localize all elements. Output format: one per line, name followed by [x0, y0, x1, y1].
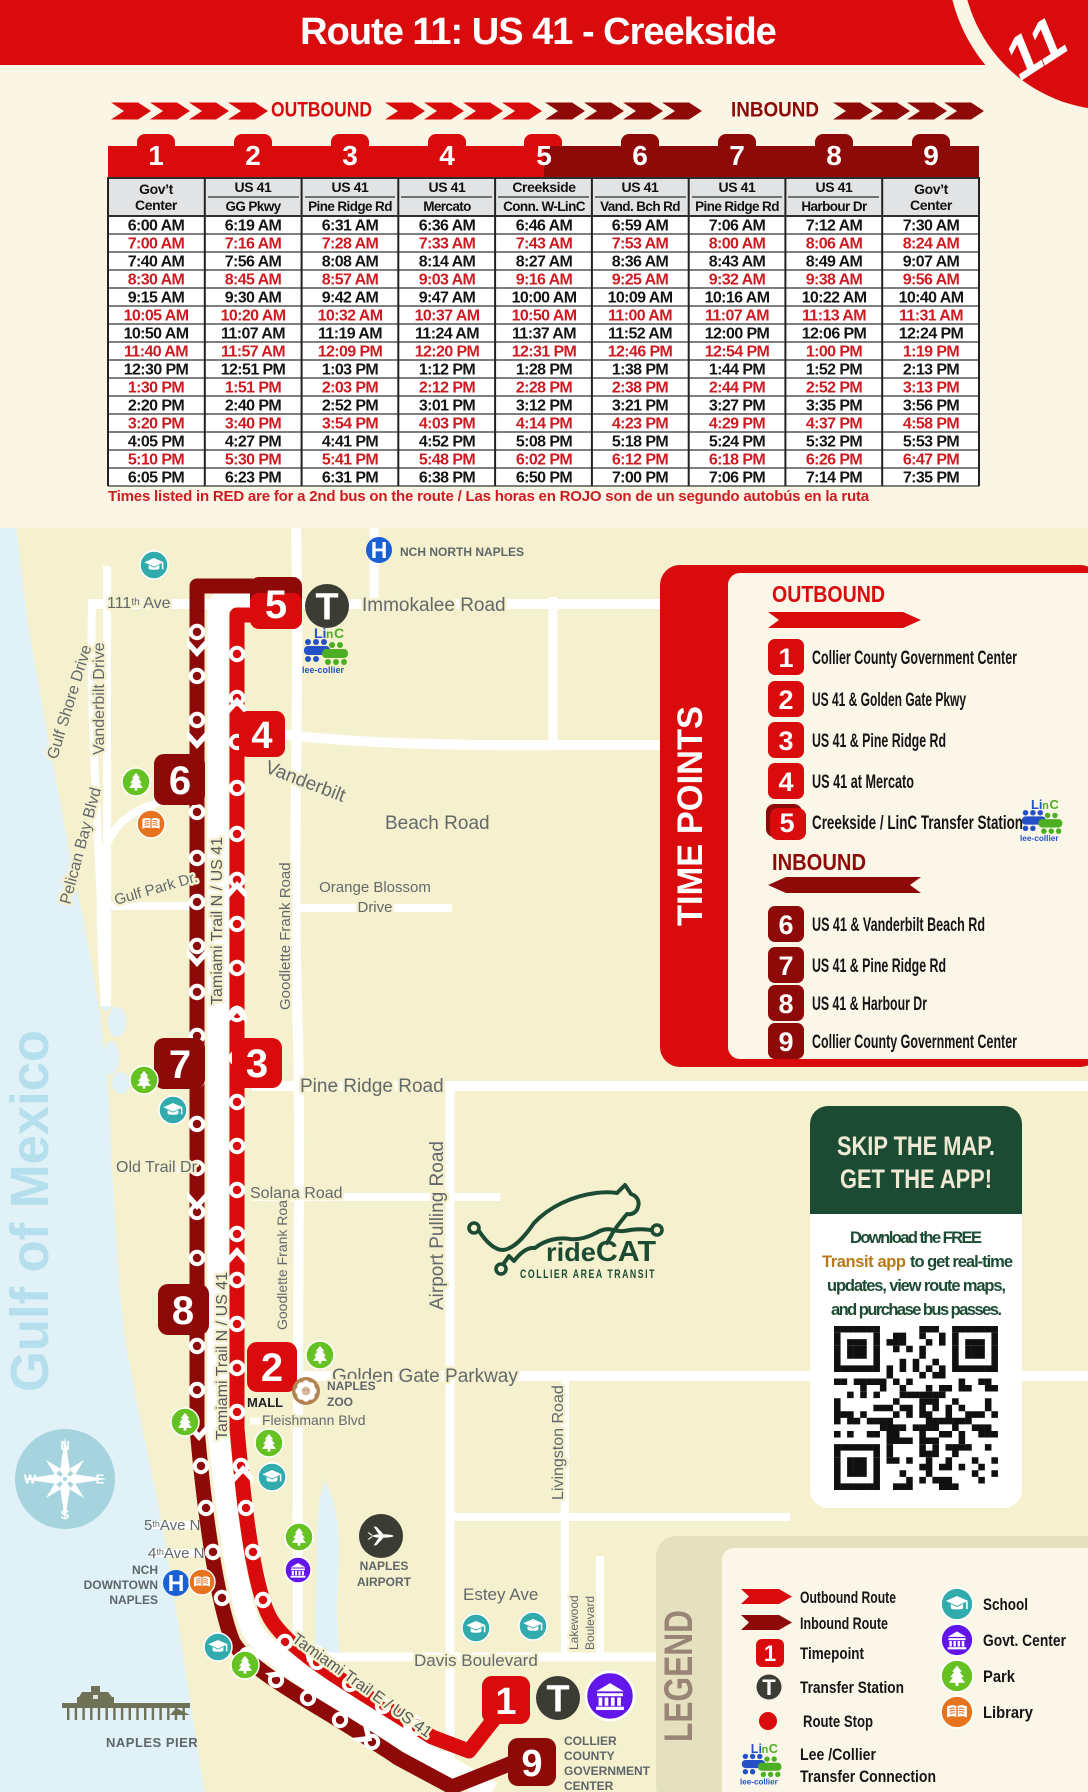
- svg-text:9:38 AM: 9:38 AM: [806, 272, 863, 289]
- svg-text:10:05 AM: 10:05 AM: [124, 308, 189, 325]
- svg-text:6:59 AM: 6:59 AM: [612, 218, 669, 235]
- svg-text:5:10 PM: 5:10 PM: [128, 452, 185, 469]
- svg-text:7:43 AM: 7:43 AM: [516, 236, 573, 253]
- svg-text:Harbour Dr: Harbour Dr: [801, 199, 868, 214]
- svg-text:9:56 AM: 9:56 AM: [903, 272, 960, 289]
- svg-text:US 41: US 41: [429, 179, 467, 195]
- svg-text:111th Ave: 111th Ave: [107, 595, 171, 612]
- svg-text:8:27 AM: 8:27 AM: [516, 254, 573, 271]
- svg-text:12:00 PM: 12:00 PM: [705, 326, 770, 343]
- svg-text:1:28 PM: 1:28 PM: [516, 362, 573, 379]
- svg-text:4:14 PM: 4:14 PM: [516, 416, 573, 433]
- svg-text:Pine Ridge Rd: Pine Ridge Rd: [695, 199, 779, 214]
- svg-text:8:06 AM: 8:06 AM: [806, 236, 863, 253]
- svg-text:Collier County Government Cent: Collier County Government Center: [812, 1032, 1017, 1053]
- svg-text:6:31 AM: 6:31 AM: [322, 218, 379, 235]
- svg-text:US 41: US 41: [332, 179, 370, 195]
- svg-text:Vand. Bch Rd: Vand. Bch Rd: [600, 199, 680, 214]
- svg-text:4: 4: [439, 140, 455, 171]
- svg-text:Gov’t: Gov’t: [914, 181, 949, 197]
- svg-text:and purchase bus passes.: and purchase bus passes.: [831, 1301, 1002, 1319]
- svg-text:1:51 PM: 1:51 PM: [225, 380, 282, 397]
- svg-text:4:52 PM: 4:52 PM: [419, 434, 476, 451]
- svg-text:7: 7: [778, 951, 793, 981]
- svg-text:8:30 AM: 8:30 AM: [128, 272, 185, 289]
- svg-text:T: T: [315, 587, 338, 629]
- svg-text:to get real-time: to get real-time: [910, 1253, 1013, 1271]
- svg-text:C: C: [1049, 797, 1058, 812]
- svg-text:2:03 PM: 2:03 PM: [322, 380, 379, 397]
- svg-text:Li: Li: [314, 625, 326, 641]
- svg-text:9:25 AM: 9:25 AM: [612, 272, 669, 289]
- svg-text:9:03 AM: 9:03 AM: [419, 272, 476, 289]
- svg-text:Li: Li: [751, 1742, 762, 1756]
- svg-text:8:14 AM: 8:14 AM: [419, 254, 476, 271]
- svg-text:8: 8: [826, 140, 842, 171]
- svg-text:3:40 PM: 3:40 PM: [225, 416, 282, 433]
- svg-text:ZOO: ZOO: [327, 1395, 353, 1409]
- svg-text:9:16 AM: 9:16 AM: [516, 272, 573, 289]
- svg-text:Center: Center: [910, 197, 953, 213]
- svg-text:10:22 AM: 10:22 AM: [802, 290, 867, 307]
- svg-text:US 41: US 41: [719, 179, 757, 195]
- svg-text:COLLIER: COLLIER: [564, 1734, 617, 1748]
- svg-text:Transfer Connection: Transfer Connection: [800, 1767, 936, 1786]
- svg-text:8:36 AM: 8:36 AM: [612, 254, 669, 271]
- svg-text:n: n: [1042, 800, 1049, 812]
- svg-text:3:35 PM: 3:35 PM: [806, 398, 863, 415]
- svg-text:7:06 AM: 7:06 AM: [709, 218, 766, 235]
- svg-text:Gulf of Mexico: Gulf of Mexico: [0, 1030, 60, 1392]
- svg-text:5:41 PM: 5:41 PM: [322, 452, 379, 469]
- svg-text:GOVERNMENT: GOVERNMENT: [564, 1764, 651, 1778]
- svg-text:7:35 PM: 7:35 PM: [903, 470, 960, 487]
- svg-text:8:45 AM: 8:45 AM: [225, 272, 282, 289]
- svg-text:8:43 AM: 8:43 AM: [709, 254, 766, 271]
- svg-text:1: 1: [148, 140, 164, 171]
- svg-text:T: T: [546, 1679, 569, 1721]
- svg-text:11:07 AM: 11:07 AM: [705, 308, 769, 325]
- svg-text:3:12 PM: 3:12 PM: [516, 398, 573, 415]
- svg-text:4:29 PM: 4:29 PM: [709, 416, 766, 433]
- svg-text:10:20 AM: 10:20 AM: [221, 308, 286, 325]
- svg-text:3:54 PM: 3:54 PM: [322, 416, 379, 433]
- svg-text:1: 1: [778, 643, 793, 673]
- svg-text:12:09 PM: 12:09 PM: [318, 344, 383, 361]
- svg-text:1:30 PM: 1:30 PM: [128, 380, 185, 397]
- svg-text:2:28 PM: 2:28 PM: [516, 380, 573, 397]
- svg-text:10:32 AM: 10:32 AM: [318, 308, 383, 325]
- svg-text:5:18 PM: 5:18 PM: [612, 434, 669, 451]
- svg-text:updates, view route maps,: updates, view route maps,: [827, 1277, 1006, 1295]
- svg-text:11:24 AM: 11:24 AM: [415, 326, 479, 343]
- svg-text:12:06 PM: 12:06 PM: [802, 326, 867, 343]
- svg-text:6:38 PM: 6:38 PM: [419, 470, 476, 487]
- svg-text:6:50 PM: 6:50 PM: [516, 470, 573, 487]
- svg-text:9:15 AM: 9:15 AM: [128, 290, 185, 307]
- svg-text:2:38 PM: 2:38 PM: [612, 380, 669, 397]
- svg-text:NAPLES: NAPLES: [109, 1593, 158, 1607]
- svg-text:7:56 AM: 7:56 AM: [225, 254, 282, 271]
- svg-text:4:03 PM: 4:03 PM: [419, 416, 476, 433]
- svg-text:Center: Center: [135, 197, 178, 213]
- svg-text:1: 1: [495, 1681, 516, 1723]
- svg-text:Conn. W-LinC: Conn. W-LinC: [503, 199, 586, 214]
- svg-text:9:07 AM: 9:07 AM: [903, 254, 960, 271]
- svg-text:C: C: [769, 1742, 778, 1756]
- svg-text:US 41 & Golden Gate Pkwy: US 41 & Golden Gate Pkwy: [812, 690, 966, 711]
- svg-text:4:23 PM: 4:23 PM: [612, 416, 669, 433]
- svg-text:3:56 PM: 3:56 PM: [903, 398, 960, 415]
- svg-text:8:00 AM: 8:00 AM: [709, 236, 766, 253]
- svg-text:n: n: [762, 1744, 769, 1756]
- svg-text:6: 6: [778, 910, 793, 940]
- svg-text:8: 8: [778, 989, 793, 1019]
- svg-text:NAPLES: NAPLES: [327, 1379, 376, 1393]
- svg-text:Livingston Road: Livingston Road: [550, 1385, 567, 1500]
- svg-text:6:00 AM: 6:00 AM: [128, 218, 185, 235]
- svg-text:lee-collier: lee-collier: [1020, 834, 1059, 843]
- svg-text:7:00 AM: 7:00 AM: [128, 236, 185, 253]
- svg-text:12:24 PM: 12:24 PM: [899, 326, 964, 343]
- svg-text:3: 3: [778, 726, 793, 756]
- svg-text:US 41 & Pine Ridge Rd: US 41 & Pine Ridge Rd: [812, 956, 946, 977]
- svg-text:9:42 AM: 9:42 AM: [322, 290, 379, 307]
- svg-text:10:37 AM: 10:37 AM: [415, 308, 480, 325]
- svg-text:School: School: [983, 1595, 1028, 1614]
- svg-text:10:50 AM: 10:50 AM: [512, 308, 577, 325]
- svg-text:7:12 AM: 7:12 AM: [806, 218, 863, 235]
- svg-text:Airport Pulling Road: Airport Pulling Road: [427, 1141, 448, 1310]
- svg-text:US 41 at Mercato: US 41 at Mercato: [812, 772, 914, 793]
- svg-text:11:19 AM: 11:19 AM: [318, 326, 382, 343]
- svg-text:9: 9: [778, 1027, 793, 1057]
- svg-text:9: 9: [923, 140, 939, 171]
- svg-text:7: 7: [169, 1043, 191, 1087]
- svg-text:7: 7: [729, 140, 745, 171]
- svg-text:12:46 PM: 12:46 PM: [608, 344, 673, 361]
- svg-text:Outbound Route: Outbound Route: [800, 1588, 896, 1607]
- svg-text:lee-collier: lee-collier: [740, 1777, 779, 1786]
- svg-text:10:40 AM: 10:40 AM: [899, 290, 964, 307]
- svg-text:Estey Ave: Estey Ave: [463, 1585, 538, 1604]
- svg-text:Govt. Center: Govt. Center: [983, 1631, 1066, 1650]
- svg-text:W: W: [24, 1472, 37, 1487]
- svg-text:8:57 AM: 8:57 AM: [322, 272, 379, 289]
- svg-text:TIME POINTS: TIME POINTS: [671, 706, 710, 926]
- svg-text:Goodlette Frank Road: Goodlette Frank Road: [277, 862, 294, 1010]
- svg-text:4: 4: [778, 767, 793, 797]
- svg-text:OUTBOUND: OUTBOUND: [271, 102, 372, 120]
- svg-text:NCH NORTH NAPLES: NCH NORTH NAPLES: [400, 545, 524, 559]
- svg-text:7:00 PM: 7:00 PM: [612, 470, 669, 487]
- svg-text:2:40 PM: 2:40 PM: [225, 398, 282, 415]
- svg-text:rideCAT: rideCAT: [546, 1236, 656, 1268]
- svg-text:11:13 AM: 11:13 AM: [802, 308, 866, 325]
- svg-text:5:24 PM: 5:24 PM: [709, 434, 766, 451]
- svg-text:3:20 PM: 3:20 PM: [128, 416, 185, 433]
- svg-text:11:57 AM: 11:57 AM: [221, 344, 285, 361]
- svg-text:9:32 AM: 9:32 AM: [709, 272, 766, 289]
- svg-text:US 41 & Vanderbilt Beach Rd: US 41 & Vanderbilt Beach Rd: [812, 915, 985, 936]
- svg-text:US 41: US 41: [816, 179, 854, 195]
- svg-text:7:14 PM: 7:14 PM: [806, 470, 863, 487]
- svg-text:8: 8: [172, 1289, 194, 1333]
- svg-text:Old Trail Dr: Old Trail Dr: [116, 1159, 198, 1176]
- svg-text:2:20 PM: 2:20 PM: [128, 398, 185, 415]
- svg-text:Fleishmann Blvd: Fleishmann Blvd: [262, 1412, 366, 1428]
- svg-text:Davis Boulevard: Davis Boulevard: [414, 1651, 538, 1670]
- svg-text:Creekside / LinC Transfer Stat: Creekside / LinC Transfer Station: [812, 813, 1023, 834]
- svg-text:Lee /Collier: Lee /Collier: [800, 1745, 876, 1764]
- svg-text:Orange Blossom: Orange Blossom: [319, 879, 431, 896]
- svg-text:11:52 AM: 11:52 AM: [608, 326, 672, 343]
- svg-text:6:46 AM: 6:46 AM: [516, 218, 573, 235]
- svg-text:6:36 AM: 6:36 AM: [419, 218, 476, 235]
- svg-text:S: S: [61, 1507, 70, 1522]
- svg-text:OUTBOUND: OUTBOUND: [772, 581, 885, 607]
- svg-text:10:09 AM: 10:09 AM: [608, 290, 673, 307]
- svg-text:Route Stop: Route Stop: [803, 1712, 873, 1731]
- svg-text:US 41: US 41: [235, 179, 273, 195]
- svg-text:Download the FREE: Download the FREE: [850, 1229, 982, 1247]
- svg-text:2:52 PM: 2:52 PM: [806, 380, 863, 397]
- svg-text:Inbound Route: Inbound Route: [800, 1614, 888, 1633]
- svg-text:2:12 PM: 2:12 PM: [419, 380, 476, 397]
- svg-text:6:47 PM: 6:47 PM: [903, 452, 960, 469]
- svg-text:GET THE APP!: GET THE APP!: [840, 1164, 992, 1194]
- svg-text:Transit app: Transit app: [822, 1253, 906, 1271]
- svg-text:2:52 PM: 2:52 PM: [322, 398, 379, 415]
- svg-text:5: 5: [779, 808, 794, 838]
- svg-text:9: 9: [521, 1743, 542, 1785]
- svg-text:Pine Ridge Road: Pine Ridge Road: [300, 1076, 444, 1097]
- svg-text:Library: Library: [983, 1703, 1033, 1722]
- svg-text:lee-collier: lee-collier: [302, 665, 345, 675]
- svg-text:2:44 PM: 2:44 PM: [709, 380, 766, 397]
- svg-text:11:37 AM: 11:37 AM: [512, 326, 576, 343]
- svg-text:12:20 PM: 12:20 PM: [415, 344, 480, 361]
- svg-text:1:52 PM: 1:52 PM: [806, 362, 863, 379]
- svg-text:US 41 & Harbour Dr: US 41 & Harbour Dr: [812, 994, 927, 1015]
- svg-text:7:16 AM: 7:16 AM: [225, 236, 282, 253]
- svg-text:1:03 PM: 1:03 PM: [322, 362, 379, 379]
- svg-text:6:31 PM: 6:31 PM: [322, 470, 379, 487]
- svg-text:4: 4: [251, 715, 272, 757]
- svg-text:1: 1: [764, 1641, 776, 1666]
- svg-text:DOWNTOWN: DOWNTOWN: [84, 1578, 158, 1592]
- svg-text:1:38 PM: 1:38 PM: [612, 362, 669, 379]
- svg-text:7:33 AM: 7:33 AM: [419, 236, 476, 253]
- svg-text:8:08 AM: 8:08 AM: [322, 254, 379, 271]
- svg-text:3: 3: [246, 1042, 268, 1086]
- svg-text:Tamiami Trail N / US 41: Tamiami Trail N / US 41: [209, 837, 226, 1005]
- svg-text:Collier County Government Cent: Collier County Government Center: [812, 648, 1017, 669]
- svg-text:INBOUND: INBOUND: [731, 102, 819, 120]
- svg-text:12:54 PM: 12:54 PM: [705, 344, 770, 361]
- svg-text:Lakewood: Lakewood: [567, 1595, 581, 1650]
- svg-text:3:01 PM: 3:01 PM: [419, 398, 476, 415]
- svg-text:2: 2: [261, 1346, 283, 1390]
- svg-text:7:40 AM: 7:40 AM: [128, 254, 185, 271]
- svg-text:Goodlette Frank Road: Goodlette Frank Road: [274, 1192, 290, 1330]
- svg-text:9:47 AM: 9:47 AM: [419, 290, 476, 307]
- svg-text:Timepoint: Timepoint: [800, 1644, 864, 1663]
- svg-text:12:31 PM: 12:31 PM: [512, 344, 577, 361]
- svg-text:Transfer Station: Transfer Station: [800, 1678, 904, 1697]
- svg-text:4:27 PM: 4:27 PM: [225, 434, 282, 451]
- svg-text:5:08 PM: 5:08 PM: [516, 434, 573, 451]
- svg-text:N: N: [60, 1438, 69, 1453]
- svg-text:Solana Road: Solana Road: [250, 1185, 343, 1202]
- svg-text:6: 6: [169, 759, 191, 803]
- svg-text:NCH: NCH: [132, 1563, 158, 1577]
- svg-text:1:44 PM: 1:44 PM: [709, 362, 766, 379]
- svg-text:7:30 AM: 7:30 AM: [903, 218, 960, 235]
- svg-text:GG Pkwy: GG Pkwy: [225, 199, 281, 214]
- svg-text:8:49 AM: 8:49 AM: [806, 254, 863, 271]
- svg-text:Tamiami Trail N / US 41: Tamiami Trail N / US 41: [214, 1272, 231, 1440]
- svg-text:11:40 AM: 11:40 AM: [124, 344, 188, 361]
- svg-text:3:13 PM: 3:13 PM: [903, 380, 960, 397]
- svg-text:Beach Road: Beach Road: [385, 813, 490, 834]
- svg-text:5:32 PM: 5:32 PM: [806, 434, 863, 451]
- svg-text:5:30 PM: 5:30 PM: [225, 452, 282, 469]
- svg-text:11:31 AM: 11:31 AM: [899, 308, 963, 325]
- svg-text:3: 3: [342, 140, 358, 171]
- svg-text:COLLIER AREA TRANSIT: COLLIER AREA TRANSIT: [520, 1269, 656, 1281]
- svg-text:2: 2: [245, 140, 261, 171]
- svg-text:US 41 & Pine Ridge Rd: US 41 & Pine Ridge Rd: [812, 731, 946, 752]
- svg-text:LEGEND: LEGEND: [657, 1610, 701, 1742]
- svg-text:8:24 AM: 8:24 AM: [903, 236, 960, 253]
- svg-text:SKIP THE MAP.: SKIP THE MAP.: [837, 1131, 995, 1161]
- svg-text:Mercato: Mercato: [423, 199, 471, 214]
- svg-text:3:27 PM: 3:27 PM: [709, 398, 766, 415]
- svg-text:10:16 AM: 10:16 AM: [705, 290, 770, 307]
- svg-text:COUNTY: COUNTY: [564, 1749, 615, 1763]
- svg-text:6:12 PM: 6:12 PM: [612, 452, 669, 469]
- svg-text:5: 5: [265, 583, 287, 627]
- svg-text:E: E: [96, 1472, 105, 1487]
- svg-text:9:30 AM: 9:30 AM: [225, 290, 282, 307]
- svg-text:11:07 AM: 11:07 AM: [221, 326, 285, 343]
- svg-text:6:26 PM: 6:26 PM: [806, 452, 863, 469]
- svg-text:MALL: MALL: [247, 1395, 283, 1410]
- svg-text:Creekside: Creekside: [512, 179, 576, 195]
- svg-text:US 41: US 41: [622, 179, 660, 195]
- svg-text:7:06 PM: 7:06 PM: [709, 470, 766, 487]
- svg-text:12:30 PM: 12:30 PM: [124, 362, 189, 379]
- svg-text:n: n: [326, 627, 333, 641]
- svg-text:6: 6: [632, 140, 648, 171]
- svg-text:6:18 PM: 6:18 PM: [709, 452, 766, 469]
- svg-text:7:28 AM: 7:28 AM: [322, 236, 379, 253]
- svg-text:7:53 AM: 7:53 AM: [612, 236, 669, 253]
- svg-text:6:02 PM: 6:02 PM: [516, 452, 573, 469]
- svg-text:5:53 PM: 5:53 PM: [903, 434, 960, 451]
- svg-text:Gov’t: Gov’t: [139, 181, 174, 197]
- svg-text:3:21 PM: 3:21 PM: [612, 398, 669, 415]
- svg-text:4:37 PM: 4:37 PM: [806, 416, 863, 433]
- svg-text:5:48 PM: 5:48 PM: [419, 452, 476, 469]
- svg-text:11:00 AM: 11:00 AM: [608, 308, 672, 325]
- svg-text:1:00 PM: 1:00 PM: [806, 344, 863, 361]
- svg-text:Boulevard: Boulevard: [583, 1596, 597, 1650]
- svg-text:10:00 AM: 10:00 AM: [512, 290, 577, 307]
- svg-text:10:50 AM: 10:50 AM: [124, 326, 189, 343]
- svg-text:4:41 PM: 4:41 PM: [322, 434, 379, 451]
- svg-text:Li: Li: [1031, 797, 1042, 812]
- svg-text:NAPLES PIER: NAPLES PIER: [106, 1735, 198, 1750]
- svg-text:H: H: [168, 1570, 185, 1596]
- svg-text:Immokalee Road: Immokalee Road: [362, 595, 506, 616]
- svg-text:AIRPORT: AIRPORT: [357, 1575, 412, 1589]
- svg-text:2:13 PM: 2:13 PM: [903, 362, 960, 379]
- svg-text:T: T: [762, 1675, 776, 1700]
- svg-text:6:23 PM: 6:23 PM: [225, 470, 282, 487]
- svg-text:2: 2: [778, 685, 793, 715]
- svg-text:12:51 PM: 12:51 PM: [221, 362, 286, 379]
- svg-text:INBOUND: INBOUND: [772, 849, 866, 875]
- svg-text:6:19 AM: 6:19 AM: [225, 218, 282, 235]
- svg-text:4:58 PM: 4:58 PM: [903, 416, 960, 433]
- svg-text:1:19 PM: 1:19 PM: [903, 344, 960, 361]
- svg-text:Drive: Drive: [357, 899, 392, 916]
- svg-text:CENTER: CENTER: [564, 1779, 614, 1792]
- svg-text:4:05 PM: 4:05 PM: [128, 434, 185, 451]
- svg-text:H: H: [371, 537, 388, 563]
- svg-text:5: 5: [536, 140, 552, 171]
- svg-text:6:05 PM: 6:05 PM: [128, 470, 185, 487]
- svg-text:C: C: [334, 625, 344, 641]
- svg-text:Vanderbilt Drive: Vanderbilt Drive: [91, 642, 108, 755]
- svg-text:NAPLES: NAPLES: [360, 1559, 409, 1573]
- svg-text:Park: Park: [983, 1667, 1015, 1686]
- svg-text:Pine Ridge Rd: Pine Ridge Rd: [308, 199, 392, 214]
- svg-text:1:12 PM: 1:12 PM: [419, 362, 476, 379]
